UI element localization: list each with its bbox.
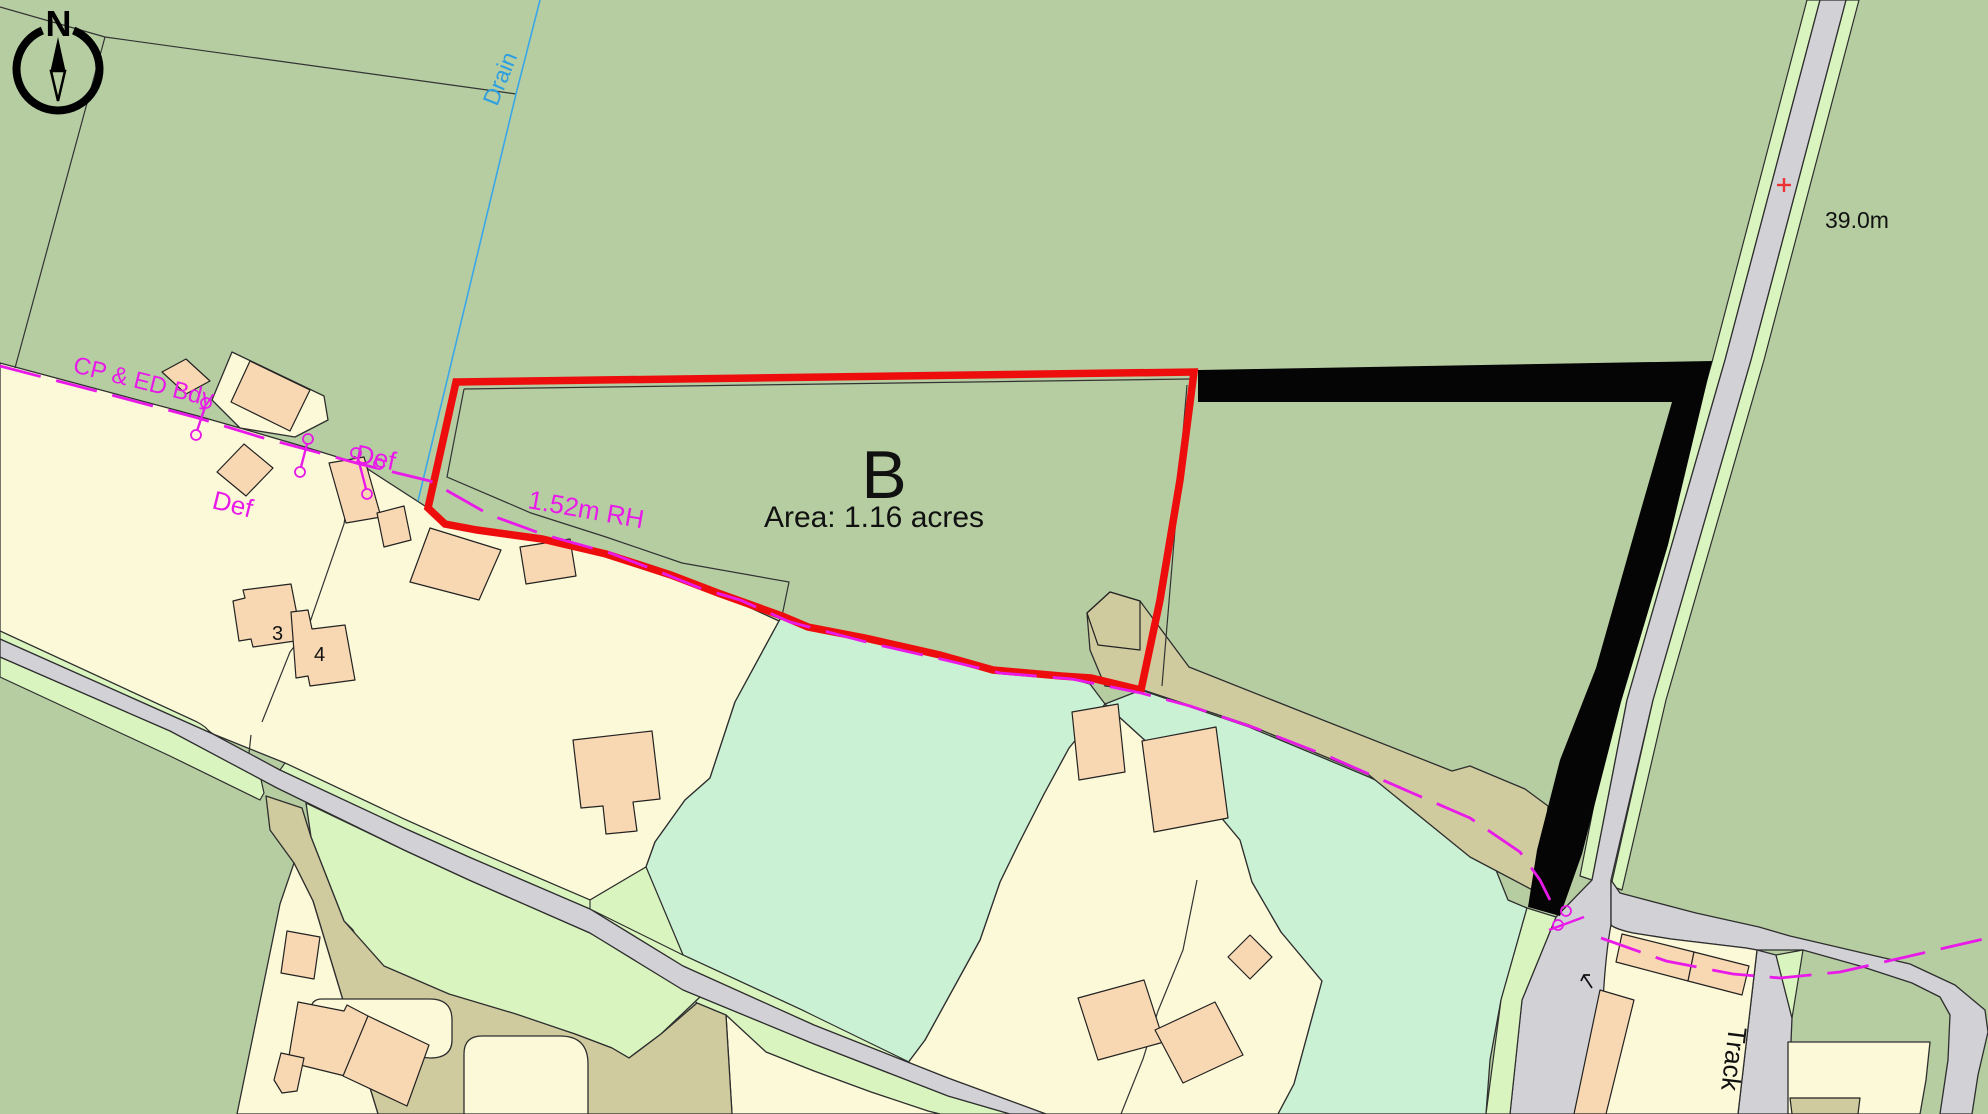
svg-text:4: 4 — [314, 644, 325, 666]
svg-text:3: 3 — [272, 623, 283, 645]
svg-text:Area: 1.16 acres: Area: 1.16 acres — [764, 501, 984, 534]
svg-text:N: N — [46, 3, 72, 44]
svg-text:39.0m: 39.0m — [1825, 207, 1889, 233]
